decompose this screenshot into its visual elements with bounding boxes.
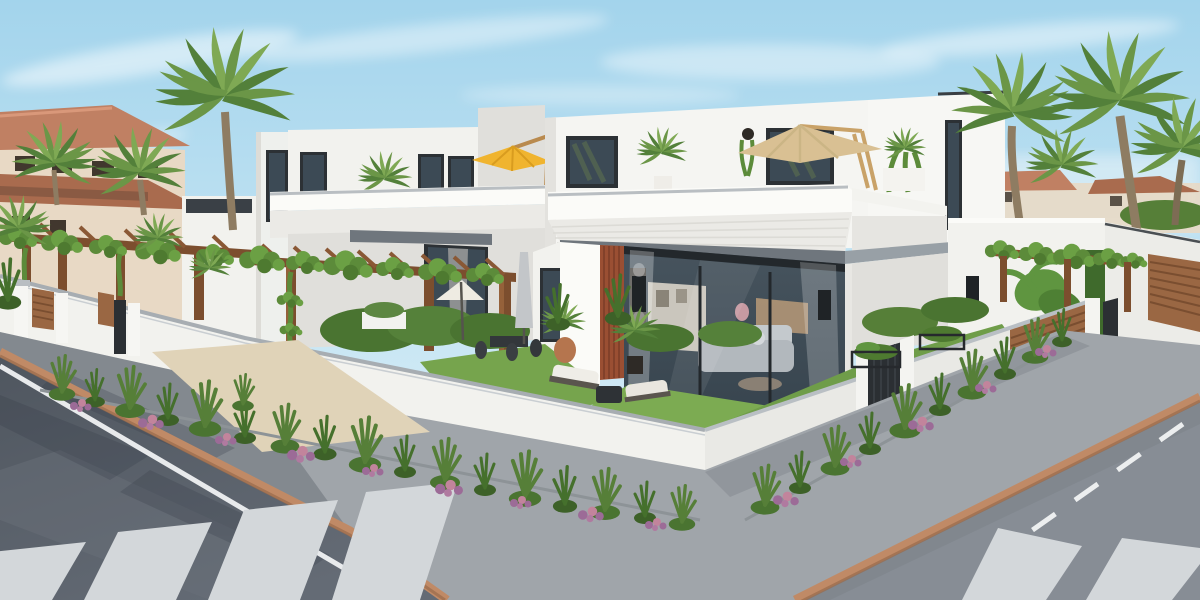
black-pot [627,356,643,374]
wall-sconce [818,290,831,320]
white-planters [362,302,406,329]
timber-garage-door [1148,254,1200,332]
villa-scene: New-build modern white villas – street c… [0,0,1200,600]
window-band [186,199,252,213]
render-canvas: New-build modern white villas – street c… [0,0,1200,600]
metal-gate [114,300,126,354]
terracotta-pot [554,337,576,363]
coffee-table [738,377,782,391]
hanging-pot [742,128,754,140]
timber-gate [98,292,114,327]
wall-sconce [632,276,646,312]
tower-window [945,120,962,230]
side-table [596,386,622,403]
